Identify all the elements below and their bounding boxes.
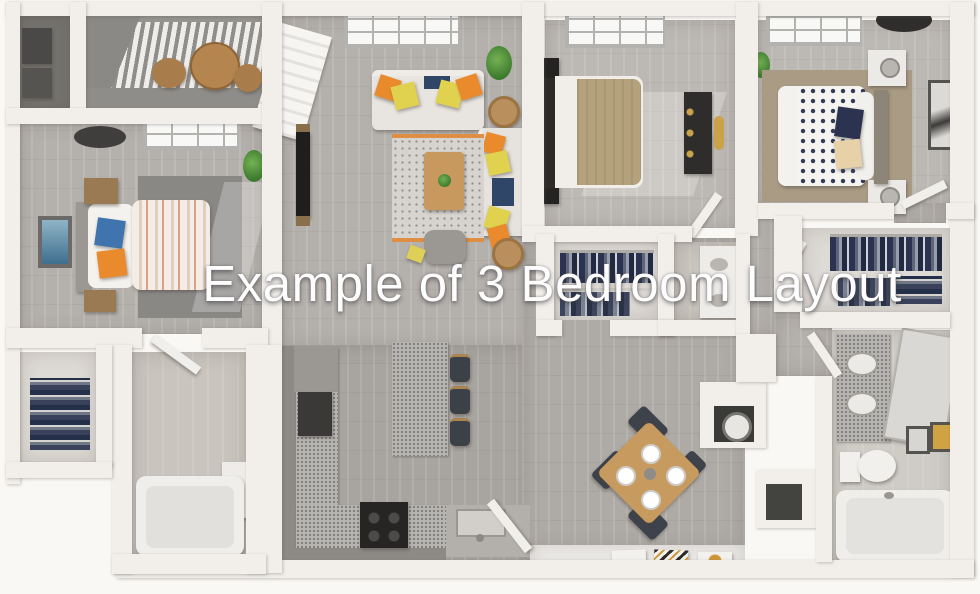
bed1-nightstand — [84, 178, 118, 204]
pillow-orange-bed1 — [96, 248, 127, 278]
patio-chair-right — [234, 64, 262, 92]
bedroom2-dresser — [684, 92, 712, 174]
plate-left — [616, 466, 636, 486]
wall-bedroom3-bottom-right — [946, 203, 974, 219]
wall-outer-top — [6, 2, 974, 16]
patio-table — [190, 42, 240, 90]
tv-screen — [296, 132, 310, 218]
toilet-tank — [840, 452, 860, 482]
pillow-cream-bed3 — [834, 139, 863, 170]
bathroom3-art-1 — [906, 426, 930, 454]
kitchen-tall-cabinet — [294, 346, 338, 392]
bed1-bench — [84, 290, 116, 312]
wall-living-bedroom2 — [522, 2, 544, 238]
closet3-folded-stack — [896, 276, 942, 304]
bathtub-1-basin — [146, 486, 234, 548]
bar-stool-1 — [450, 354, 470, 382]
bar-stool-2 — [450, 386, 470, 414]
plate-top — [641, 444, 661, 464]
plate-right — [666, 466, 686, 486]
coffee-table-plant — [438, 174, 451, 187]
side-sofa-pillow-yellow-top — [485, 150, 511, 176]
wicker-side-table-1 — [488, 96, 520, 128]
bed2-duvet-tan — [577, 79, 641, 185]
overlay-title: Example of 3 Bedroom Layout — [202, 254, 902, 313]
side-sofa-navy-cushion — [492, 178, 514, 206]
stacked-washer — [22, 28, 52, 64]
lamp-top — [880, 58, 900, 78]
stacked-dryer — [22, 68, 52, 98]
balcony-edge — [86, 88, 262, 108]
bar-stool-3 — [450, 418, 470, 446]
living-room-window — [344, 12, 460, 48]
bedroom1-window — [143, 122, 239, 150]
bed3-sheet-fold — [778, 86, 798, 186]
stove — [360, 502, 408, 548]
tv-console-bottom — [296, 216, 310, 226]
wall-bathroom1-bottom — [112, 554, 266, 574]
bed1-duvet — [132, 200, 210, 290]
bedroom3-window — [766, 12, 862, 46]
bathtub-3-faucet — [884, 492, 894, 499]
wall-bedroom2-bedroom3 — [736, 2, 758, 236]
wall-closet1-bottom — [6, 462, 112, 478]
bathtub-3-basin — [846, 498, 944, 554]
wall-bath2-bottom — [658, 320, 746, 336]
living-room-plant — [486, 46, 512, 80]
utility-opening-lower — [766, 484, 802, 520]
ceiling-fan-bedroom1 — [74, 126, 126, 148]
bedroom2-window — [565, 12, 665, 48]
bed3-headboard — [874, 90, 888, 184]
pillow-blue — [94, 217, 126, 249]
wall-outer-left — [6, 2, 20, 484]
kitchen-faucet — [476, 534, 484, 542]
plate-bottom — [641, 490, 661, 510]
toilet-bowl — [858, 450, 896, 482]
patio-chair-left — [152, 58, 186, 88]
wall-closet3-bottom — [800, 312, 950, 328]
wall-stub-dining — [736, 334, 776, 382]
refrigerator — [298, 392, 332, 436]
wall-laundry-right — [70, 2, 86, 112]
wall-bathroom1-left — [112, 345, 132, 573]
table-centerpiece — [644, 468, 656, 480]
bathroom3-vanity-counter — [836, 334, 890, 442]
wall-bathroom1-kitchen — [246, 345, 282, 573]
pillow-navy-bed3 — [834, 106, 864, 139]
wall-bathroom3-left — [816, 376, 832, 562]
kitchen-island — [392, 342, 448, 456]
wall-closet1-right — [96, 345, 112, 467]
wall-art-bedroom1 — [38, 216, 72, 268]
closet1-folded-clothes — [30, 378, 90, 450]
bed2-headboard — [543, 78, 555, 186]
wall-outer-right — [950, 2, 974, 576]
bathroom3-sink-2 — [846, 392, 878, 416]
bathroom3-sink-1 — [846, 352, 878, 376]
wall-closet2-bottom-left — [536, 320, 562, 336]
floor-plan-scene: Example of 3 Bedroom Layout — [0, 0, 980, 594]
bedroom2-round-mirror — [714, 116, 724, 150]
wall-below-balcony — [6, 108, 268, 124]
washer-door — [722, 412, 752, 442]
